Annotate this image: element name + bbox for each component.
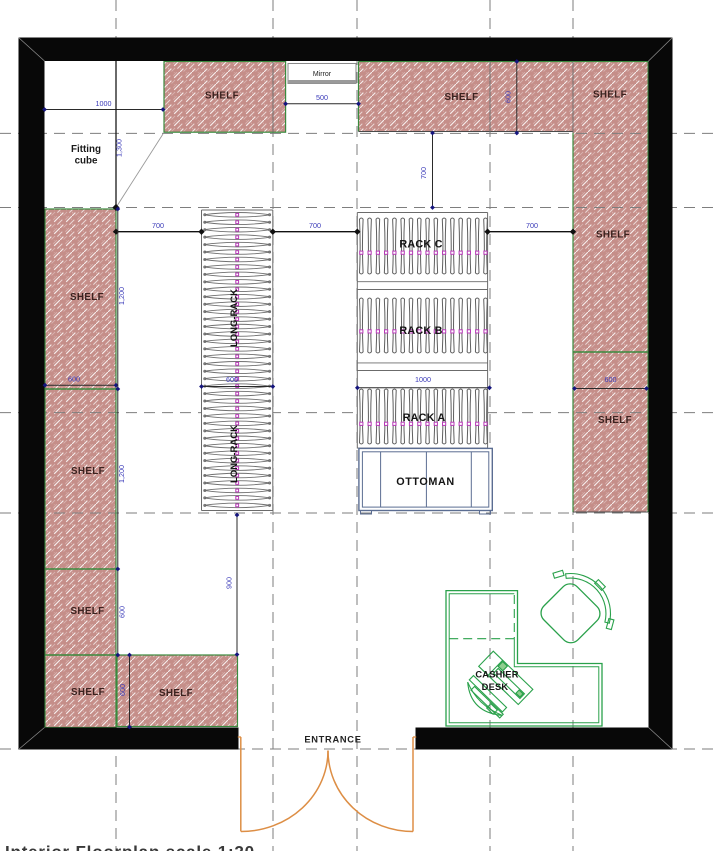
svg-text:600: 600 <box>226 375 238 384</box>
svg-text:SHELF: SHELF <box>71 687 105 698</box>
svg-text:cube: cube <box>75 156 98 167</box>
svg-text:RACK C: RACK C <box>399 239 442 251</box>
svg-text:700: 700 <box>419 167 428 179</box>
svg-text:600: 600 <box>118 606 127 618</box>
svg-text:SHELF: SHELF <box>70 292 104 303</box>
svg-text:LONG-RACK: LONG-RACK <box>229 289 240 347</box>
svg-text:ENTRANCE: ENTRANCE <box>304 735 361 745</box>
svg-text:600: 600 <box>68 375 80 384</box>
svg-text:SHELF: SHELF <box>598 415 632 426</box>
svg-text:SHELF: SHELF <box>159 688 193 699</box>
svg-text:OTTOMAN: OTTOMAN <box>396 476 455 488</box>
svg-text:CASHIER: CASHIER <box>475 670 518 680</box>
svg-text:1000: 1000 <box>415 375 431 384</box>
svg-text:1,200: 1,200 <box>117 287 126 305</box>
svg-text:700: 700 <box>309 221 321 230</box>
svg-text:600: 600 <box>504 91 513 103</box>
svg-text:SHELF: SHELF <box>596 230 630 241</box>
svg-text:500: 500 <box>316 93 328 102</box>
svg-text:Fitting: Fitting <box>71 144 101 155</box>
svg-text:RACK B: RACK B <box>399 325 442 337</box>
svg-text:600: 600 <box>118 684 127 696</box>
svg-text:1,300: 1,300 <box>115 139 124 157</box>
svg-text:SHELF: SHELF <box>70 606 104 617</box>
svg-text:900: 900 <box>225 577 234 589</box>
svg-text:Mirror: Mirror <box>313 71 332 78</box>
svg-text:600: 600 <box>605 375 617 384</box>
svg-text:SHELF: SHELF <box>205 91 239 102</box>
svg-text:RACK A: RACK A <box>403 412 446 424</box>
svg-text:LONG-RACK: LONG-RACK <box>229 425 240 483</box>
svg-text:1,200: 1,200 <box>117 465 126 483</box>
svg-text:DESK: DESK <box>482 682 509 692</box>
svg-text:1000: 1000 <box>96 99 112 108</box>
svg-text:700: 700 <box>526 221 538 230</box>
svg-text:SHELF: SHELF <box>593 90 627 101</box>
svg-text:SHELF: SHELF <box>71 466 105 477</box>
svg-text:700: 700 <box>152 221 164 230</box>
svg-text:Interior Floorplan scale 1:20: Interior Floorplan scale 1:20 <box>5 843 255 852</box>
svg-text:SHELF: SHELF <box>444 92 478 103</box>
